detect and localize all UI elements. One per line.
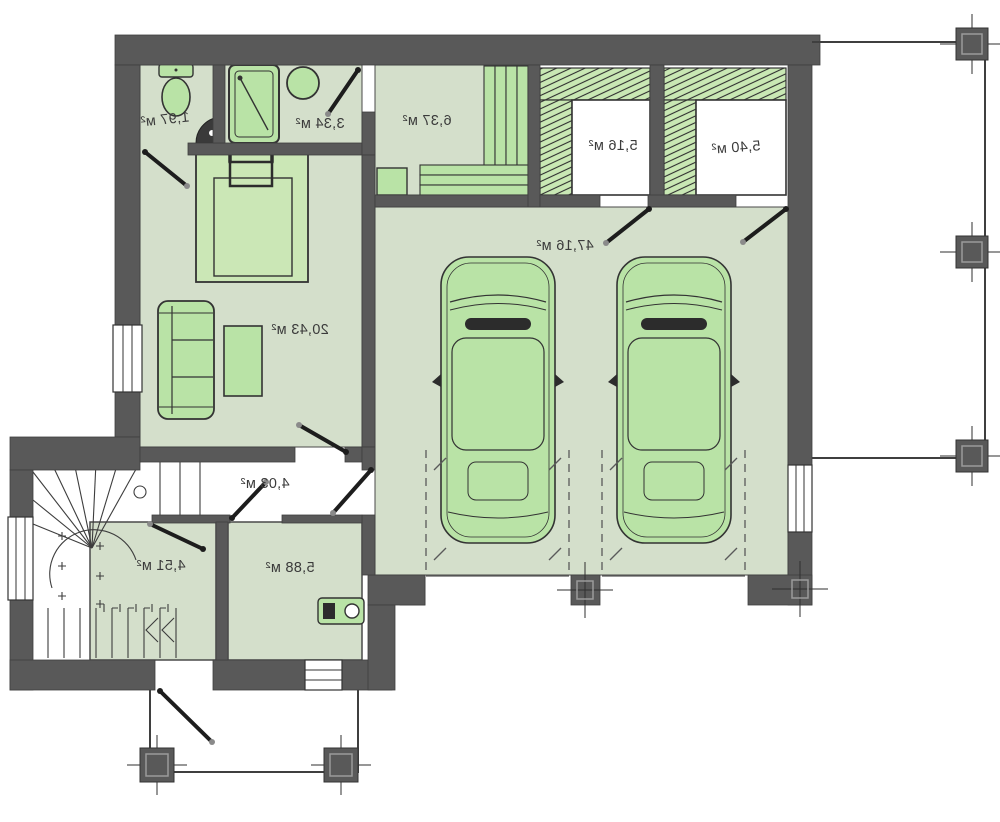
wardrobe-1 <box>540 68 650 195</box>
coffee-table-icon <box>224 326 262 396</box>
window-icon <box>305 660 342 690</box>
room-area-label-garage: 47,16 м² <box>536 238 594 254</box>
room-area-label-living-room: 20,43 м² <box>271 322 329 338</box>
wardrobe-hanger-icon <box>540 100 572 195</box>
double-bed-icon <box>196 146 308 282</box>
car-icon <box>432 257 564 543</box>
room-area-label-wardrobe-1: 5,16 м² <box>588 138 637 154</box>
room-area-label-bathroom: 3,34 м² <box>295 116 344 132</box>
column-marker-icon <box>940 222 1000 282</box>
sauna-stove-icon <box>377 168 407 195</box>
car-icon <box>608 257 740 543</box>
window-icon <box>113 325 142 392</box>
sofa-icon <box>158 301 214 419</box>
column-marker-icon <box>940 14 1000 74</box>
room-area-label-storage: 4,51 м² <box>136 558 185 574</box>
window-icon <box>8 517 33 600</box>
room-area-label-sauna: 6,37 м² <box>402 113 451 129</box>
floor-plan: 1,97 м² 3,34 м² 6,37 м² 5,16 м² 5,40 м² … <box>0 0 1000 822</box>
toilet-icon <box>159 64 193 116</box>
wardrobe-hanger-icon <box>664 100 696 195</box>
column-marker-icon <box>127 735 187 795</box>
wardrobe-hanger-icon <box>664 68 786 100</box>
wardrobe-2 <box>664 68 786 195</box>
shower-cabin-icon <box>229 65 279 143</box>
door-swing-icon <box>157 688 215 745</box>
room-area-label-hallway: 4,03 м² <box>240 476 289 492</box>
window-icon <box>788 465 812 532</box>
room-area-label-wardrobe-2: 5,40 м² <box>711 138 761 157</box>
column-marker-icon <box>940 426 1000 486</box>
column-marker-icon <box>311 735 371 795</box>
door-swing-icon <box>330 467 374 516</box>
round-sink-icon <box>287 67 319 99</box>
room-area-label-boiler-room: 5,88 м² <box>265 560 314 576</box>
wardrobe-hanger-icon <box>540 68 650 100</box>
entrance-porch <box>127 690 371 795</box>
terrace <box>812 14 1000 486</box>
boiler-icon <box>318 598 364 624</box>
